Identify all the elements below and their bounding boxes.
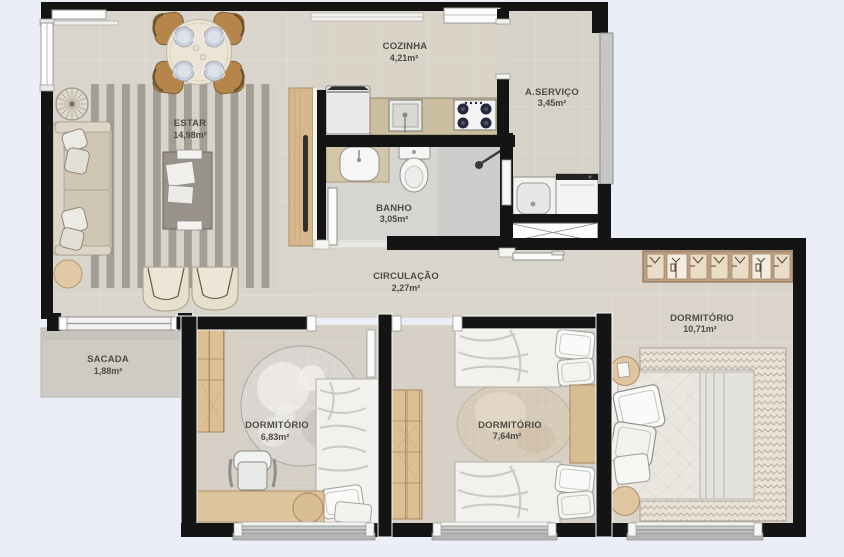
svg-text:14,98m²: 14,98m² [173, 130, 207, 140]
svg-text:1,88m²: 1,88m² [94, 366, 123, 376]
svg-text:6,83m²: 6,83m² [261, 432, 290, 442]
svg-text:10,71m²: 10,71m² [683, 324, 717, 334]
svg-text:3,45m²: 3,45m² [538, 98, 567, 108]
svg-text:SACADA: SACADA [87, 354, 129, 365]
svg-text:BANHO: BANHO [376, 203, 412, 214]
svg-text:DORMITÓRIO: DORMITÓRIO [245, 419, 309, 431]
svg-text:7,64m²: 7,64m² [493, 431, 522, 441]
svg-text:2,27m²: 2,27m² [392, 283, 421, 293]
svg-text:A.SERVIÇO: A.SERVIÇO [525, 87, 579, 98]
svg-text:ESTAR: ESTAR [174, 118, 207, 129]
svg-text:COZINHA: COZINHA [383, 41, 428, 52]
svg-text:CIRCULAÇÃO: CIRCULAÇÃO [373, 271, 439, 282]
svg-text:DORMITÓRIO: DORMITÓRIO [670, 312, 734, 324]
svg-text:DORMITÓRIO: DORMITÓRIO [478, 419, 542, 431]
svg-text:4,21m²: 4,21m² [390, 53, 419, 63]
svg-text:3,05m²: 3,05m² [380, 214, 409, 224]
